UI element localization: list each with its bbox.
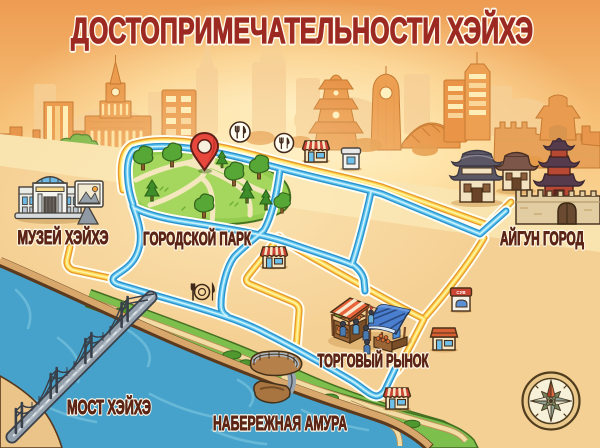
svg-text:ТОРГОВЫЙ РЫНОК: ТОРГОВЫЙ РЫНОК [318,350,430,371]
svg-text:МОСТ ХЭЙХЭ: МОСТ ХЭЙХЭ [67,395,151,419]
svg-text:СУВ: СУВ [456,290,466,295]
svg-text:ГОРОДСКОЙ ПАРК: ГОРОДСКОЙ ПАРК [143,228,252,249]
svg-text:НАБЕРЕЖНАЯ АМУРА: НАБЕРЕЖНАЯ АМУРА [213,413,347,435]
svg-text:МУЗЕЙ ХЭЙХЭ: МУЗЕЙ ХЭЙХЭ [18,227,109,249]
svg-text:АЙГУН ГОРОД: АЙГУН ГОРОД [500,228,584,250]
svg-text:ДОСТОПРИМЕЧАТЕЛЬНОСТИ ХЭЙХЭ: ДОСТОПРИМЕЧАТЕЛЬНОСТИ ХЭЙХЭ [71,9,533,51]
